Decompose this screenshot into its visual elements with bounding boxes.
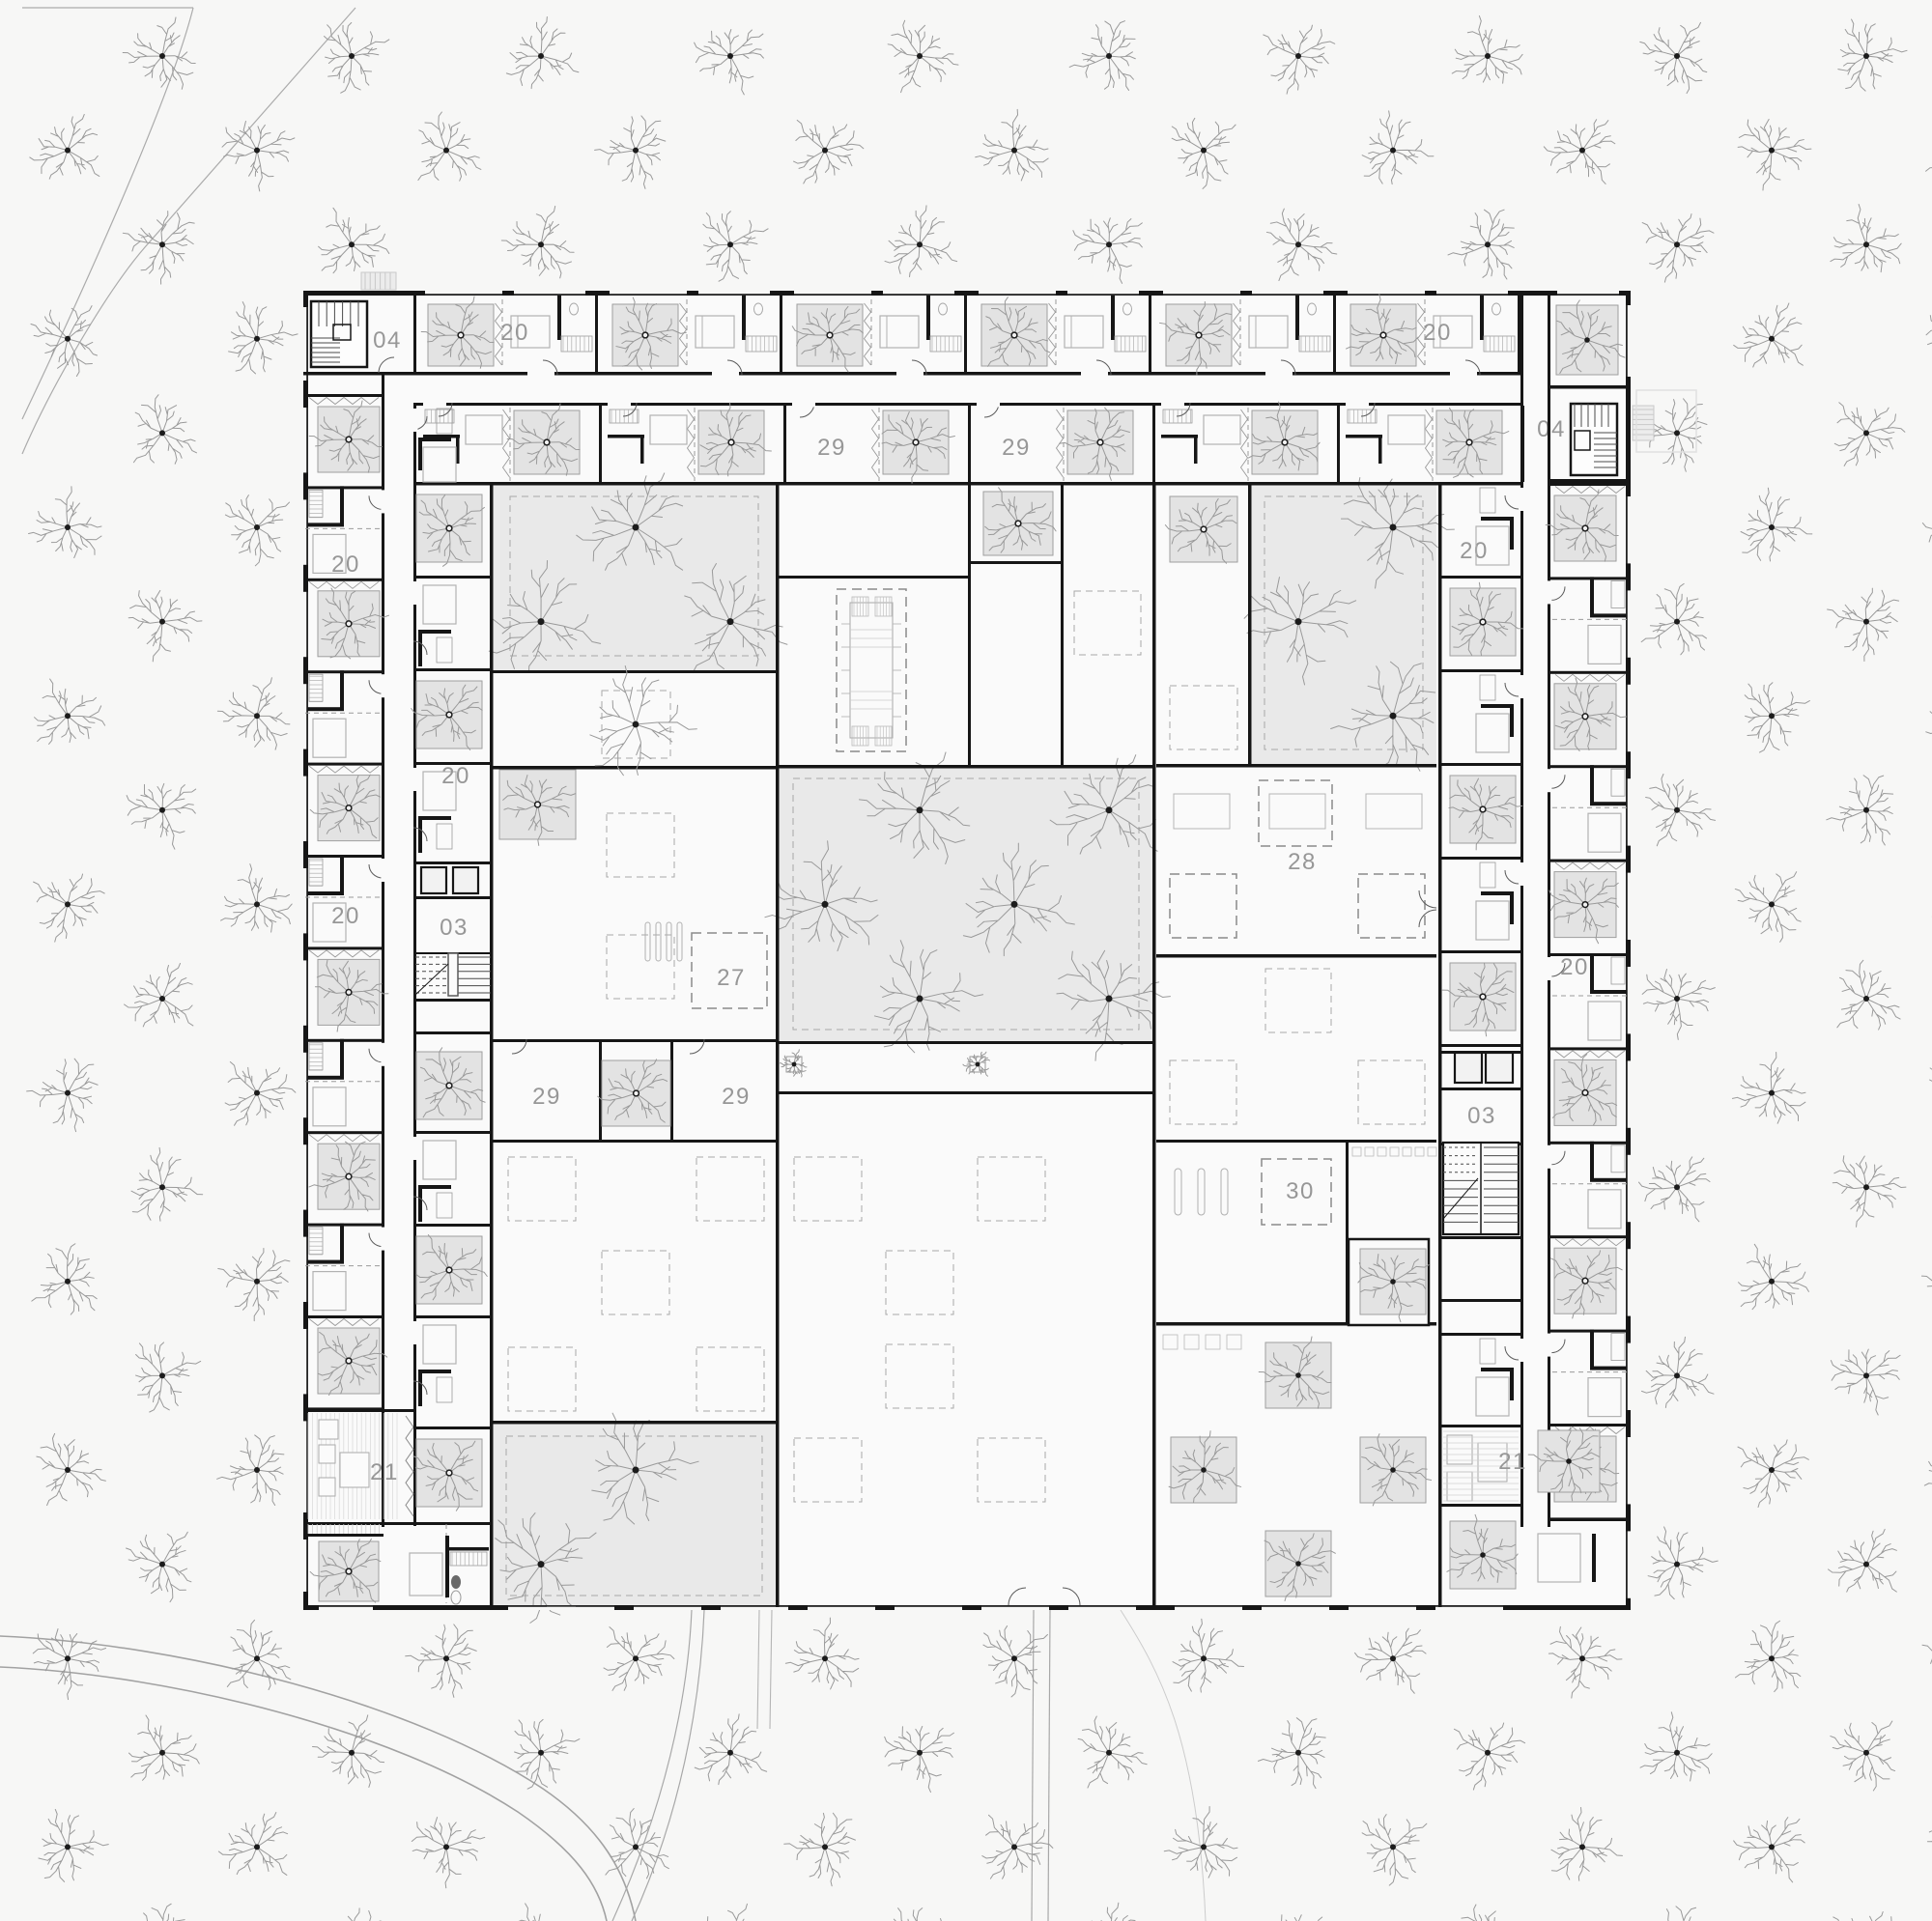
svg-text:21: 21 <box>1498 1449 1527 1475</box>
svg-text:21: 21 <box>370 1459 399 1485</box>
svg-text:30: 30 <box>1286 1178 1315 1204</box>
svg-text:04: 04 <box>1537 416 1566 442</box>
svg-text:29: 29 <box>532 1084 561 1110</box>
svg-text:20: 20 <box>1560 954 1589 980</box>
svg-text:20: 20 <box>441 763 470 789</box>
svg-text:20: 20 <box>331 903 360 929</box>
svg-text:20: 20 <box>1460 538 1489 564</box>
svg-text:28: 28 <box>1288 849 1317 875</box>
svg-text:20: 20 <box>331 551 360 578</box>
svg-text:03: 03 <box>1467 1103 1496 1129</box>
svg-text:20: 20 <box>1423 320 1452 346</box>
svg-text:29: 29 <box>817 435 846 461</box>
svg-text:29: 29 <box>722 1084 751 1110</box>
svg-text:29: 29 <box>1002 435 1031 461</box>
svg-text:03: 03 <box>440 915 469 941</box>
svg-text:20: 20 <box>500 320 529 346</box>
svg-text:27: 27 <box>717 965 746 991</box>
svg-text:04: 04 <box>373 327 402 353</box>
